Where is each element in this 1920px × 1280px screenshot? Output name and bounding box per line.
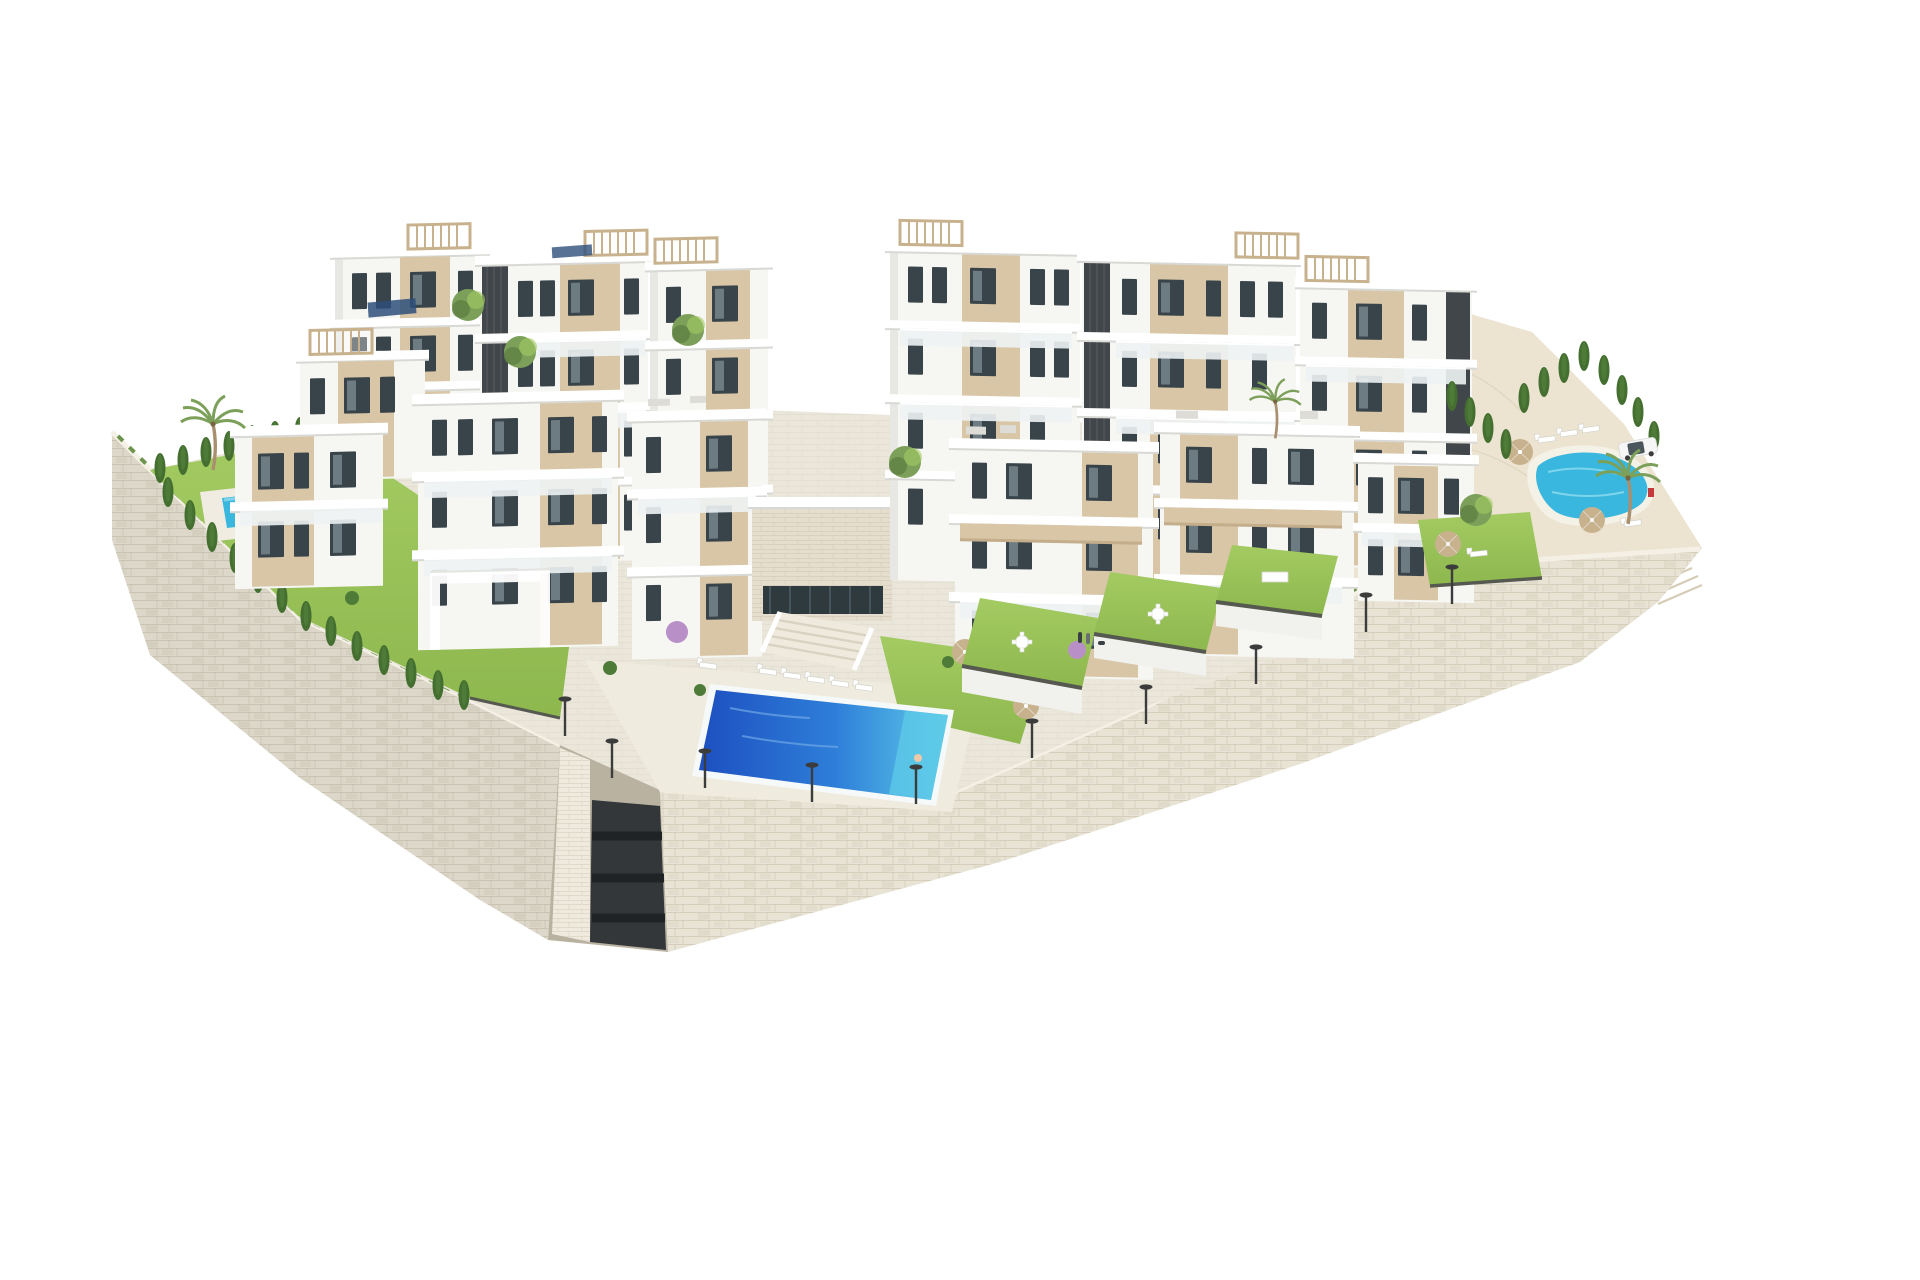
garden-2 <box>1094 572 1222 676</box>
architectural-render <box>0 0 1920 1280</box>
flowering-purple-shrub <box>666 621 688 643</box>
building-left-front-2 <box>412 390 624 651</box>
swimmer-red <box>1648 488 1654 497</box>
swimmer <box>914 754 922 762</box>
building-left-front-3 <box>627 394 767 659</box>
render-scene <box>0 0 1920 1280</box>
garden-3 <box>1216 545 1338 640</box>
entrance-building <box>748 497 898 621</box>
